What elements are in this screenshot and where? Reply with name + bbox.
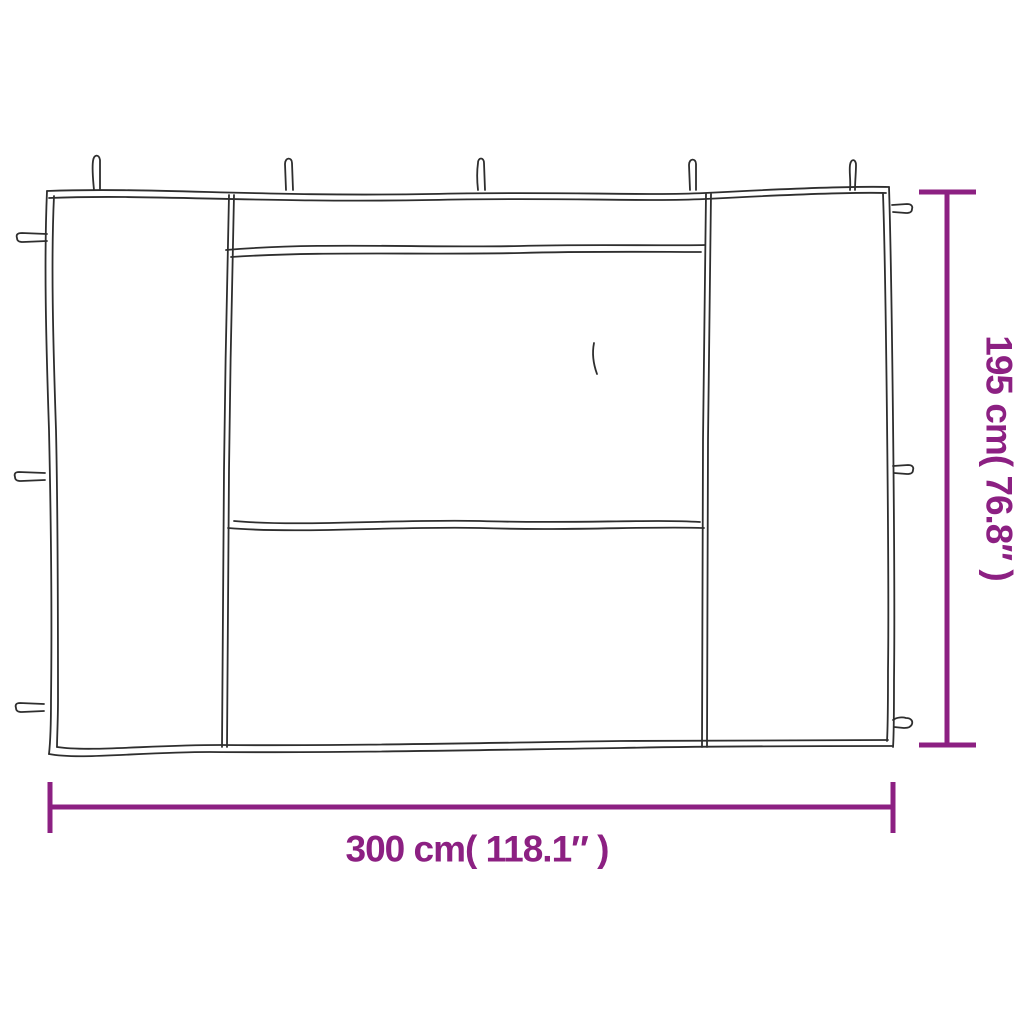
wall-right-edge-inner <box>883 194 888 741</box>
left-tab-1 <box>17 233 47 242</box>
window-bottom-edge-outer <box>228 528 704 531</box>
wall-left-edge-outer <box>46 191 52 754</box>
sidewall-outline-group <box>15 156 914 757</box>
width-dimension-label: 300 cm( 118.1″ ) <box>346 831 609 868</box>
wall-left-edge-inner <box>53 196 58 747</box>
panel-seam-right-a <box>702 194 706 747</box>
right-tab-2 <box>893 465 913 474</box>
product-dimension-diagram: 300 cm( 118.1″ ) 195 cm( 76.8″ ) <box>0 0 1024 1024</box>
left-tab-2 <box>15 472 45 481</box>
dimension-annotations-group <box>50 192 976 833</box>
top-tie-loop-4 <box>689 160 696 190</box>
window-bottom-edge-inner <box>234 521 700 524</box>
left-tab-3 <box>16 703 44 712</box>
window-top-edge-inner <box>231 252 701 257</box>
top-tie-loop-3 <box>477 159 485 191</box>
top-tie-loop-5 <box>850 160 856 190</box>
window-top-edge-outer <box>226 245 705 250</box>
window-crease-mark <box>593 343 597 374</box>
right-tab-3 <box>893 717 912 728</box>
wall-top-edge-outer <box>47 187 889 195</box>
panel-seam-right-b <box>707 194 711 747</box>
sidewall-line-drawing <box>0 0 1024 1024</box>
top-tie-loop-1 <box>93 156 100 190</box>
right-tab-1 <box>892 204 912 213</box>
top-tie-loop-2 <box>285 159 293 190</box>
wall-bottom-edge-outer <box>49 746 892 756</box>
wall-bottom-edge-inner <box>57 740 888 749</box>
wall-right-edge-outer <box>889 187 894 747</box>
height-dimension-label: 195 cm( 76.8″ ) <box>981 335 1018 580</box>
